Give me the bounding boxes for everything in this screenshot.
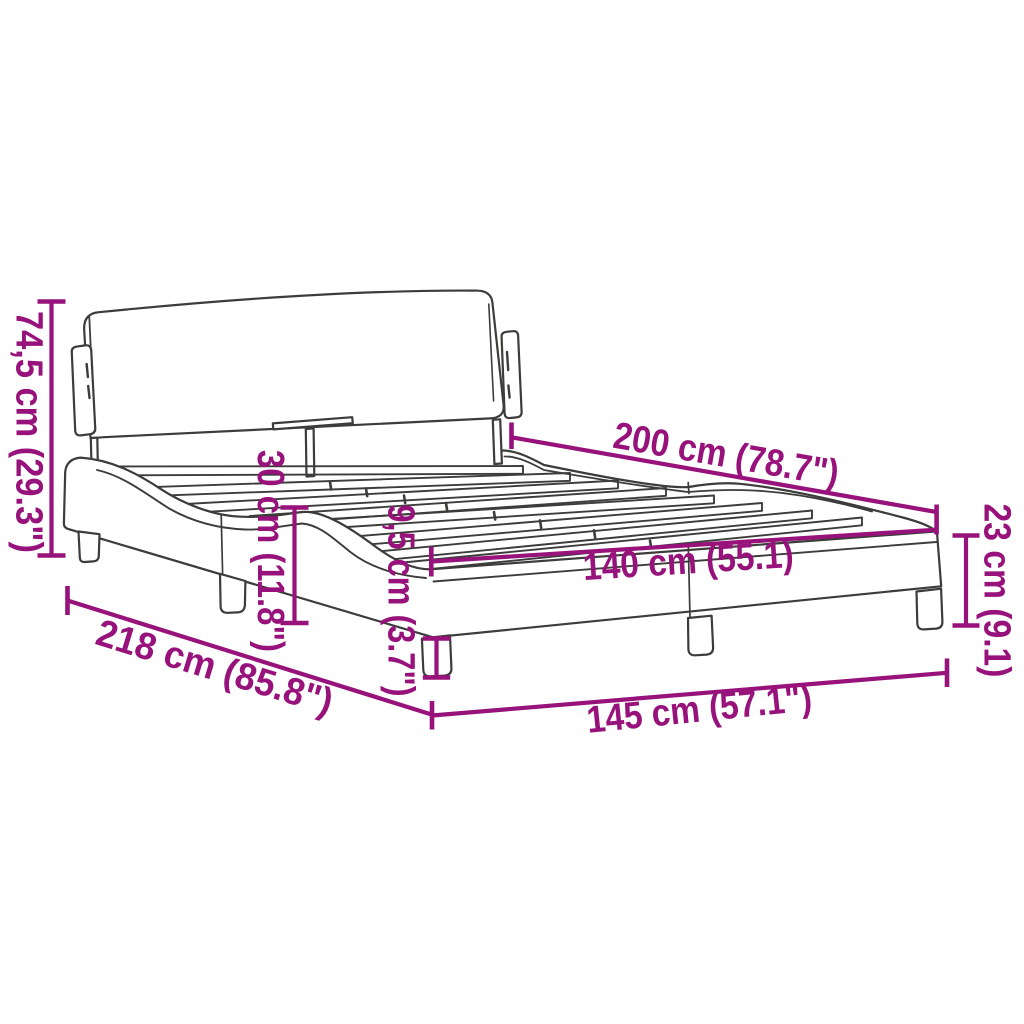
svg-text:30 cm (11.8"): 30 cm (11.8")	[249, 450, 291, 652]
svg-text:74,5 cm (29.3"): 74,5 cm (29.3")	[8, 311, 50, 553]
svg-text:9,5 cm (3.7"): 9,5 cm (3.7")	[380, 505, 422, 697]
svg-text:23 cm (9.1): 23 cm (9.1)	[976, 504, 1018, 678]
